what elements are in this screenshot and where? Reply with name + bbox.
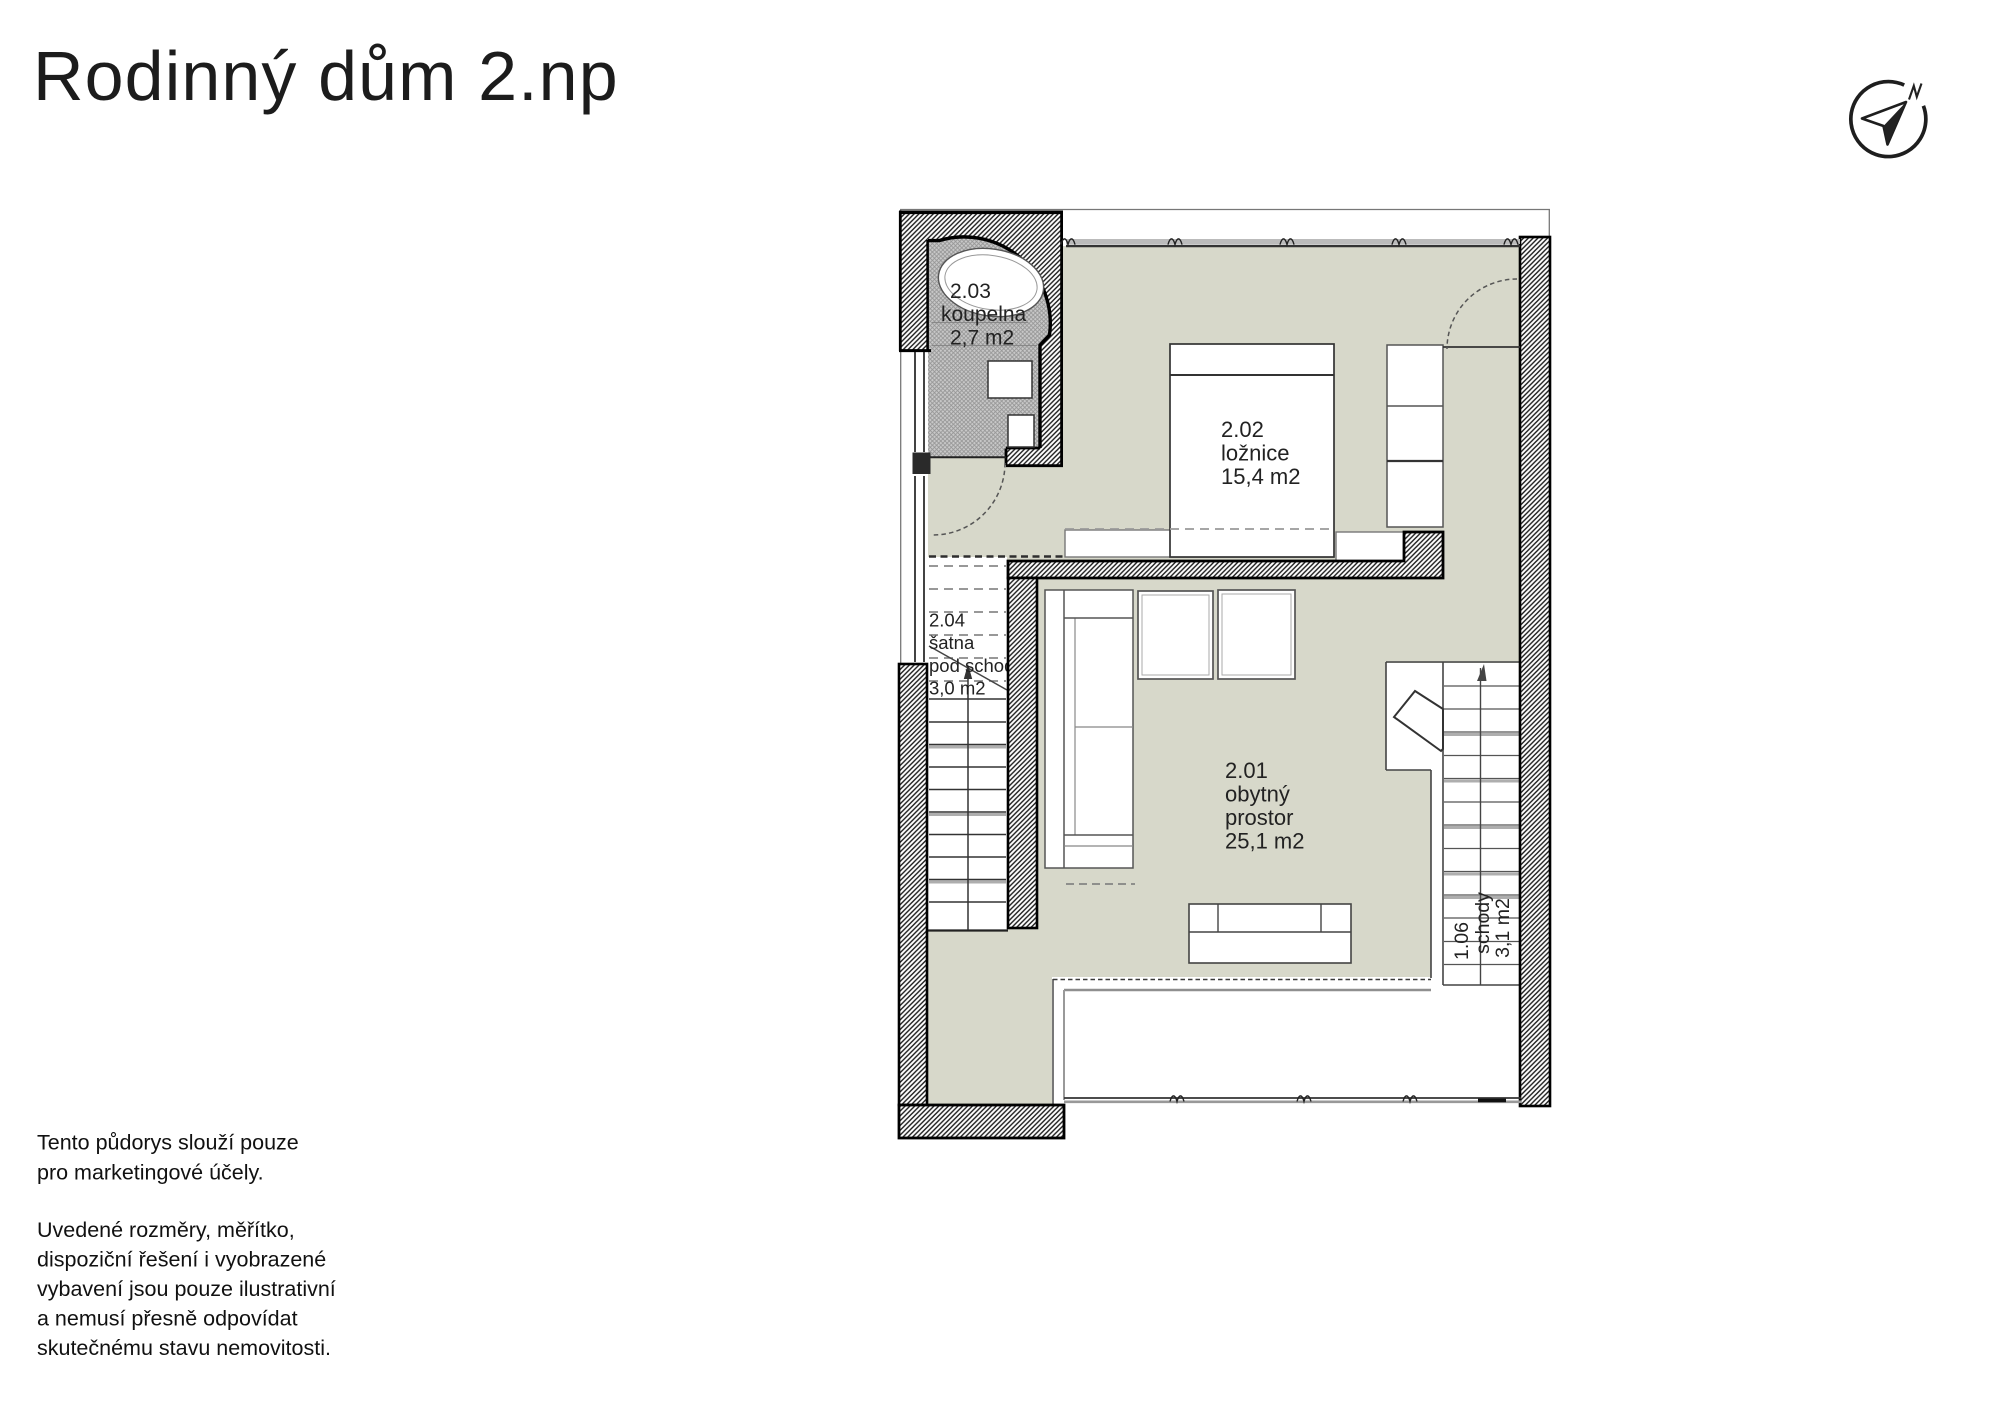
- svg-text:koupelna: koupelna: [941, 303, 1027, 326]
- svg-text:dispoziční řešení i vyobrazené: dispoziční řešení i vyobrazené: [37, 1248, 326, 1272]
- svg-text:2.04: 2.04: [929, 610, 965, 631]
- svg-text:vybavení jsou pouze ilustrativ: vybavení jsou pouze ilustrativní: [37, 1277, 336, 1301]
- svg-text:prostor: prostor: [1225, 805, 1293, 830]
- svg-text:schody: schody: [1472, 892, 1494, 954]
- svg-text:3,1 m2: 3,1 m2: [1492, 898, 1514, 958]
- svg-text:ložnice: ložnice: [1221, 441, 1289, 466]
- svg-text:šatna: šatna: [929, 632, 975, 653]
- svg-text:15,4 m2: 15,4 m2: [1221, 464, 1301, 489]
- svg-text:2.02: 2.02: [1221, 417, 1264, 442]
- svg-text:Tento půdorys slouží pouze: Tento půdorys slouží pouze: [37, 1131, 299, 1155]
- svg-text:1.06: 1.06: [1451, 922, 1473, 960]
- svg-text:25,1 m2: 25,1 m2: [1225, 829, 1305, 854]
- svg-text:3,0 m2: 3,0 m2: [929, 678, 986, 699]
- svg-text:pro marketingové účely.: pro marketingové účely.: [37, 1160, 264, 1184]
- svg-text:2.01: 2.01: [1225, 758, 1268, 783]
- svg-text:Rodinný dům 2.np: Rodinný dům 2.np: [33, 37, 619, 115]
- svg-text:2.03: 2.03: [950, 280, 991, 303]
- svg-text:Uvedené rozměry, měřítko,: Uvedené rozměry, měřítko,: [37, 1218, 295, 1242]
- svg-text:obytný: obytný: [1225, 782, 1290, 807]
- svg-text:a nemusí přesně odpovídat: a nemusí přesně odpovídat: [37, 1307, 298, 1331]
- svg-text:skutečnému stavu nemovitosti.: skutečnému stavu nemovitosti.: [37, 1336, 331, 1360]
- svg-text:2,7 m2: 2,7 m2: [950, 327, 1014, 350]
